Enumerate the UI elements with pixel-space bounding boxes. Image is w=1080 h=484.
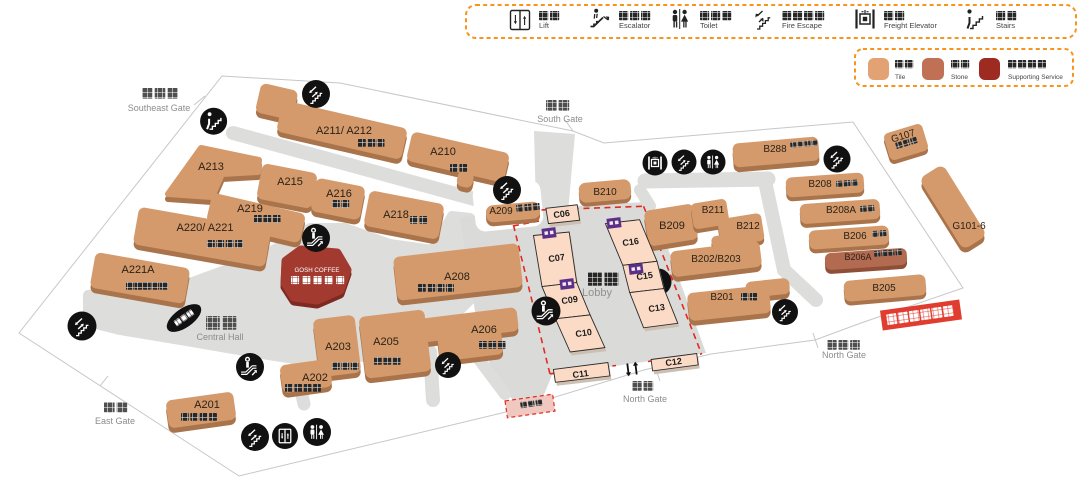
svg-text:East Gate: East Gate bbox=[95, 416, 135, 426]
svg-text:A205: A205 bbox=[373, 336, 399, 348]
svg-text:B202/B203: B202/B203 bbox=[691, 254, 741, 265]
svg-text:A213: A213 bbox=[198, 161, 224, 173]
svg-text:B208A: B208A bbox=[826, 205, 856, 216]
svg-text:B210: B210 bbox=[593, 187, 617, 198]
svg-text:Toilet: Toilet bbox=[700, 21, 718, 30]
svg-text:GOSH COFFEE: GOSH COFFEE bbox=[294, 267, 339, 274]
svg-text:A202: A202 bbox=[302, 372, 328, 384]
svg-text:B288: B288 bbox=[763, 144, 787, 155]
svg-text:Southeast Gate: Southeast Gate bbox=[128, 103, 191, 113]
svg-text:B206A: B206A bbox=[844, 252, 871, 262]
svg-text:A203: A203 bbox=[325, 341, 351, 353]
svg-text:Freight Elevator: Freight Elevator bbox=[884, 21, 937, 30]
svg-text:A208: A208 bbox=[444, 271, 470, 283]
svg-text:Tile: Tile bbox=[895, 74, 906, 81]
svg-text:G101-6: G101-6 bbox=[952, 221, 986, 232]
svg-text:A201: A201 bbox=[194, 399, 220, 411]
svg-text:North Gate: North Gate bbox=[822, 350, 866, 360]
svg-text:B206: B206 bbox=[843, 231, 867, 242]
svg-text:South Gate: South Gate bbox=[537, 114, 583, 124]
svg-text:A219: A219 bbox=[237, 203, 263, 215]
svg-text:A216: A216 bbox=[326, 188, 352, 200]
svg-text:A215: A215 bbox=[277, 176, 303, 188]
svg-text:B205: B205 bbox=[872, 283, 896, 294]
svg-text:A206: A206 bbox=[471, 324, 497, 336]
svg-text:Escalator: Escalator bbox=[619, 21, 651, 30]
svg-text:Lift: Lift bbox=[539, 21, 550, 30]
svg-text:Lobby: Lobby bbox=[582, 287, 612, 299]
svg-text:Stairs: Stairs bbox=[996, 21, 1015, 30]
svg-text:Fire Escape: Fire Escape bbox=[782, 21, 822, 30]
svg-text:Supporting Service: Supporting Service bbox=[1008, 74, 1063, 81]
svg-text:North Gate: North Gate bbox=[623, 394, 667, 404]
svg-text:B208: B208 bbox=[808, 179, 832, 190]
svg-text:A221A: A221A bbox=[121, 264, 155, 276]
svg-text:A211/ A212: A211/ A212 bbox=[316, 125, 372, 137]
svg-text:Stone: Stone bbox=[951, 74, 968, 81]
svg-text:B201: B201 bbox=[710, 292, 734, 303]
svg-text:A210: A210 bbox=[430, 146, 456, 158]
svg-text:B209: B209 bbox=[659, 220, 685, 232]
svg-text:A218: A218 bbox=[383, 209, 409, 221]
svg-text:Central Hall: Central Hall bbox=[196, 332, 243, 342]
svg-text:B211: B211 bbox=[702, 205, 725, 216]
svg-text:A209: A209 bbox=[489, 206, 513, 217]
svg-text:A220/ A221: A220/ A221 bbox=[177, 222, 234, 234]
svg-text:B212: B212 bbox=[736, 221, 760, 232]
